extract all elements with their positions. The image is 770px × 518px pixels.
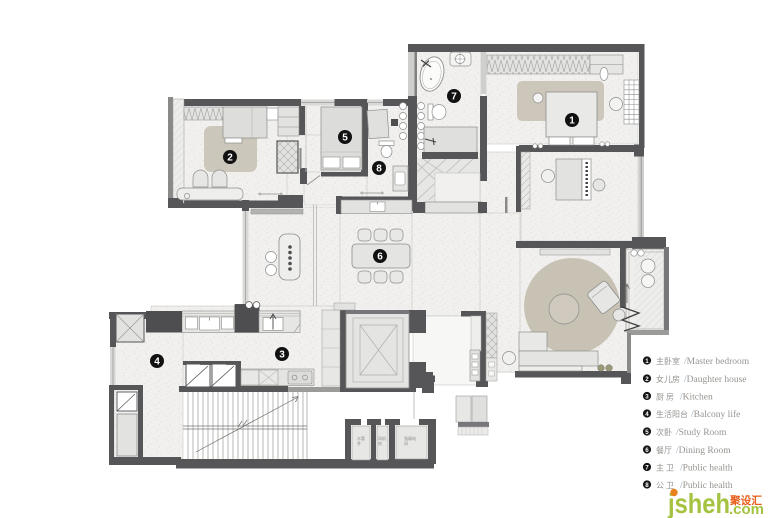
svg-text:2: 2	[227, 153, 233, 164]
svg-text:/Balcony life: /Balcony life	[691, 409, 740, 420]
svg-text:/Kitchen: /Kitchen	[680, 393, 713, 403]
svg-text:6: 6	[377, 252, 383, 263]
svg-text:主卧室: 主卧室	[656, 356, 680, 366]
svg-text:5: 5	[342, 133, 348, 144]
svg-text:/Public health: /Public health	[680, 464, 733, 474]
svg-text:聚设汇: 聚设汇	[729, 494, 763, 507]
svg-text:8: 8	[645, 482, 649, 489]
svg-text:5: 5	[645, 429, 649, 436]
svg-text:4: 4	[154, 357, 160, 368]
svg-text:/Master bedroom: /Master bedroom	[684, 357, 750, 367]
svg-text:次卧: 次卧	[656, 427, 672, 437]
svg-text:间: 间	[404, 440, 408, 446]
svg-text:厨 房: 厨 房	[656, 392, 674, 402]
svg-text:2: 2	[645, 376, 649, 383]
svg-text:/Dining Room: /Dining Room	[676, 446, 731, 456]
svg-text:女儿房: 女儿房	[656, 374, 680, 384]
svg-text:井: 井	[357, 440, 361, 446]
svg-text:生活阳台: 生活阳台	[656, 409, 688, 419]
svg-text:3: 3	[645, 394, 649, 401]
svg-text:7: 7	[645, 465, 649, 472]
svg-text:/Study Room: /Study Room	[676, 428, 727, 438]
svg-text:1: 1	[645, 358, 649, 365]
svg-text:7: 7	[451, 92, 457, 103]
svg-text:3: 3	[279, 350, 285, 361]
svg-text:6: 6	[645, 447, 649, 454]
svg-text:/Daughter house: /Daughter house	[684, 375, 747, 385]
svg-text:8: 8	[376, 164, 382, 175]
svg-text:房: 房	[378, 440, 382, 446]
svg-text:主 卫: 主 卫	[656, 463, 674, 473]
svg-text:餐厅: 餐厅	[656, 446, 672, 455]
svg-text:4: 4	[645, 411, 649, 418]
svg-text:1: 1	[569, 116, 575, 127]
